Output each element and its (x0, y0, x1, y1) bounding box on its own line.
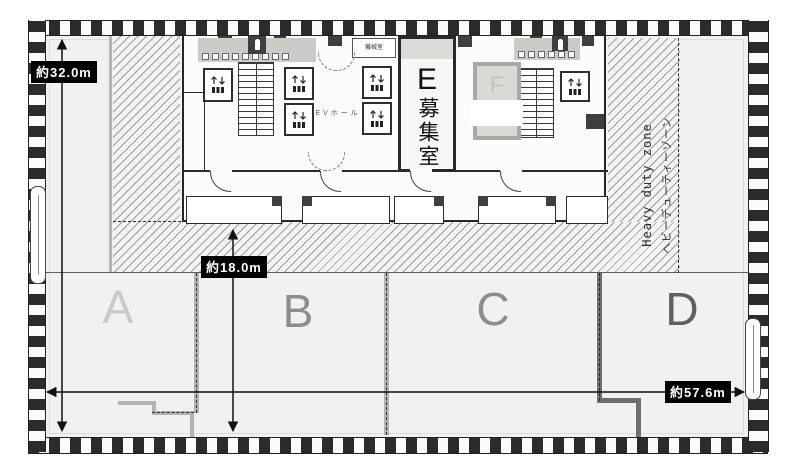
shaft (434, 196, 444, 206)
elevator (362, 102, 392, 135)
toilet-fixture (222, 53, 229, 60)
restroom-sign-left (248, 36, 266, 54)
elevator (560, 71, 590, 102)
partition-wall (204, 92, 205, 170)
toilet-fixture (242, 53, 249, 60)
section-a-label: A (94, 283, 142, 331)
elevator (203, 68, 233, 102)
door-swing (210, 171, 231, 192)
building-core: 機械室 EVホール E 募集室 (182, 34, 606, 222)
elevator-icon (565, 77, 585, 97)
shaft (586, 114, 604, 129)
toilet-fixture (252, 53, 259, 60)
hatch-zone-band (113, 222, 680, 273)
hatch-zone-left (113, 35, 180, 222)
unit-e-top-strip (401, 39, 453, 59)
shaft (582, 36, 594, 46)
ev-hall-label: EVホール (300, 108, 376, 118)
section-b-label: B (274, 287, 322, 335)
machine-room-label: 機械室 (365, 45, 383, 51)
elevator (362, 66, 392, 99)
double-door-dashed (318, 52, 337, 71)
core-room (186, 196, 282, 224)
heavy-duty-zone-label-en: Heavy duty zone (640, 90, 656, 280)
wall-window-right (745, 318, 761, 400)
person-icon (255, 39, 260, 50)
heavy-duty-edge-dashed-line (678, 38, 679, 273)
corridor-wall (184, 170, 608, 172)
elevator (284, 67, 314, 100)
notch-line-1 (118, 401, 156, 405)
notch-line-4 (190, 411, 194, 437)
dimension-label-height: 約32.0m (31, 61, 97, 83)
elevator-icon (367, 73, 387, 93)
shaft (302, 196, 312, 206)
core-room (302, 196, 390, 224)
toilet-fixture (282, 53, 289, 60)
toilet-fixture (548, 51, 555, 58)
notch-dash (152, 412, 194, 413)
toilet-fixture (212, 53, 219, 60)
restroom-sign-right (552, 36, 568, 51)
double-door-dashed (336, 52, 355, 71)
divider-a-b-dash (196, 273, 197, 413)
toilet-fixture (568, 51, 575, 58)
dimension-label-width: 約57.6m (665, 381, 731, 403)
staircase-right (518, 68, 554, 138)
unit-e-label: E (401, 65, 453, 95)
door-swing (410, 171, 431, 192)
wall-window-left (30, 186, 46, 284)
core-room (478, 196, 556, 224)
shaft (328, 36, 342, 46)
staircase-left (238, 62, 274, 136)
lease-line-left (109, 35, 112, 273)
dimension-label-depth: 約18.0m (201, 256, 267, 278)
section-c-label: C (469, 285, 517, 333)
floor-plan: 機械室 EVホール E 募集室 (0, 0, 787, 469)
divider-c-d-step-down (636, 401, 641, 437)
section-d-label: D (658, 285, 706, 333)
toilet-fixtures (518, 51, 575, 58)
double-door-dashed (326, 152, 345, 171)
elevator-icon (208, 75, 228, 95)
toilet-fixture (528, 51, 535, 58)
shaft (478, 196, 488, 206)
toilet-fixture (262, 53, 269, 60)
elevator-icon (289, 74, 309, 94)
toilet-fixture (518, 51, 525, 58)
shaft (546, 196, 556, 206)
toilet-fixture (232, 53, 239, 60)
unit-e: E 募集室 (398, 36, 456, 172)
core-room (566, 196, 608, 224)
perimeter-wall-top (28, 20, 768, 36)
shaft (458, 36, 472, 47)
partition-wall (184, 92, 204, 93)
toilet-fixture (558, 51, 565, 58)
toilet-fixture (538, 51, 545, 58)
person-icon (558, 39, 563, 50)
toilet-fixtures (202, 53, 289, 60)
toilet-fixture (272, 53, 279, 60)
double-door-dashed (308, 152, 327, 171)
shaft (272, 196, 282, 206)
unit-e-status: 募集室 (412, 97, 442, 169)
divider-b-c-dash (386, 273, 387, 435)
toilet-fixture (202, 53, 209, 60)
heavy-duty-zone-label-ja: ヘビーデューティーゾーン (659, 90, 675, 280)
door-swing (320, 171, 341, 192)
machine-room: 機械室 (352, 38, 396, 58)
redaction-patch (471, 100, 523, 126)
divider-c-d-step (597, 398, 641, 403)
restroom-right (514, 38, 580, 60)
door-swing (500, 171, 521, 192)
unit-f-label: F (490, 72, 505, 99)
divider-c-d-dash (599, 273, 600, 401)
perimeter-wall-bottom (28, 437, 768, 454)
